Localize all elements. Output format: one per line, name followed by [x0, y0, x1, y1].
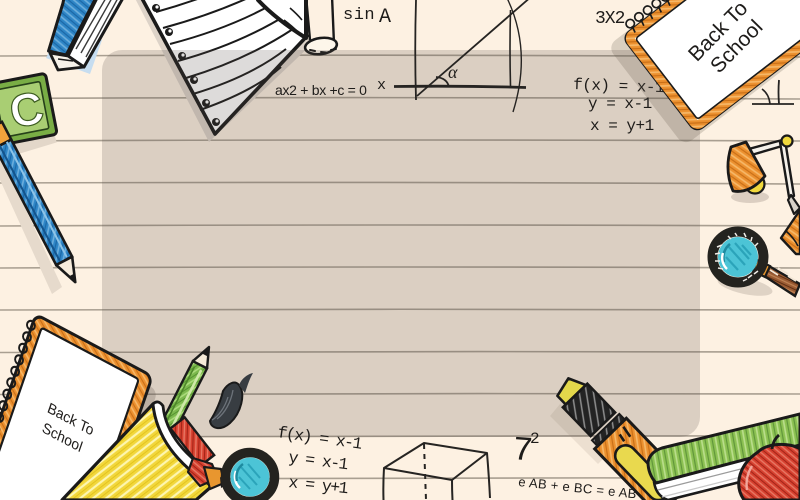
svg-text:A: A	[379, 6, 391, 29]
svg-text:y = x-1: y = x-1	[588, 95, 652, 113]
svg-text:x = y+1: x = y+1	[590, 117, 654, 135]
svg-text:3X2: 3X2	[595, 9, 625, 29]
svg-text:sin: sin	[343, 6, 375, 25]
svg-text:ax2 + bx +c = 0: ax2 + bx +c = 0	[275, 82, 367, 98]
svg-text:2: 2	[530, 430, 540, 448]
svg-text:α: α	[448, 62, 458, 82]
svg-text:x: x	[377, 77, 386, 94]
